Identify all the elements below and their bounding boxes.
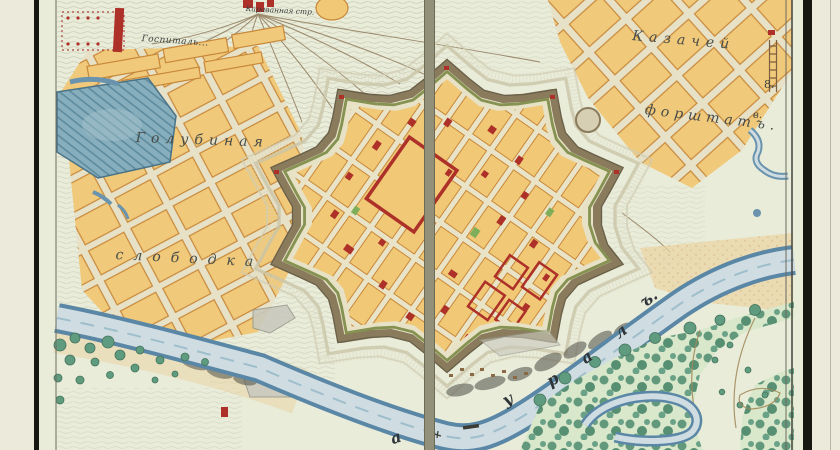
- left-frame-line: [34, 0, 39, 450]
- pond: [57, 78, 176, 178]
- right-frame-line: [803, 0, 812, 450]
- vertical-road: [424, 0, 435, 450]
- outer-neatline: [830, 0, 831, 450]
- red-marker: [221, 407, 228, 417]
- ne-ravelin: [576, 108, 600, 132]
- left-margin: [0, 0, 34, 450]
- right-margin: [812, 0, 840, 450]
- historical-city-plan: Госпиталь... Караванная стр. Голубиная с…: [0, 0, 840, 450]
- map-artwork: [0, 0, 840, 450]
